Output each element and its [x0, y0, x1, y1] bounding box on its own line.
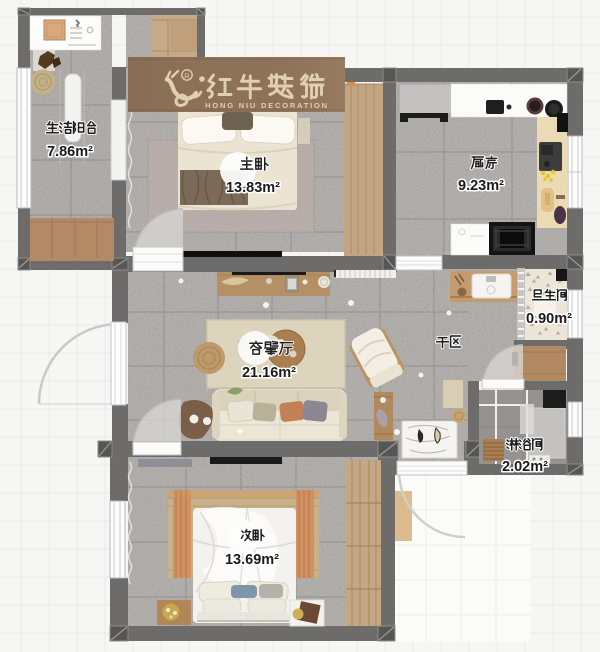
svg-text:2.02m²: 2.02m²	[502, 459, 548, 475]
svg-text:13.69m²: 13.69m²	[225, 552, 279, 568]
svg-text:HONG NIU DECORATION: HONG NIU DECORATION	[205, 101, 329, 110]
svg-text:0.90m²: 0.90m²	[526, 311, 572, 327]
svg-text:21.16m²: 21.16m²	[242, 365, 296, 381]
svg-text:R: R	[184, 72, 190, 81]
svg-text:13.83m²: 13.83m²	[226, 180, 280, 196]
svg-text:9.23m²: 9.23m²	[458, 178, 504, 194]
svg-text:7.86m²: 7.86m²	[47, 144, 93, 160]
